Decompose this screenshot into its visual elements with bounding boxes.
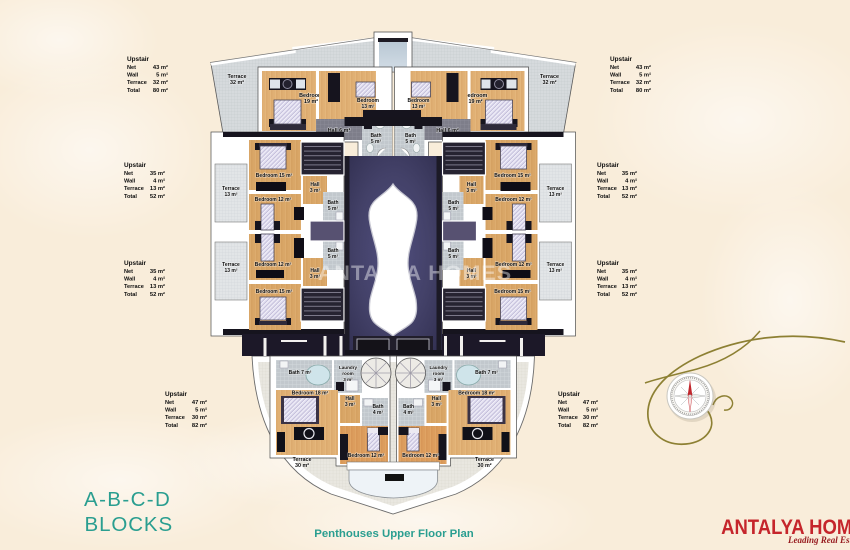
svg-text:Total: Total [597, 292, 610, 298]
svg-text:Bedroom 15 m²: Bedroom 15 m² [494, 173, 531, 179]
svg-text:13 m²: 13 m² [150, 283, 165, 290]
svg-text:3 m²: 3 m² [431, 402, 442, 408]
svg-text:30 m²: 30 m² [583, 414, 598, 421]
svg-text:5 m²: 5 m² [448, 254, 459, 260]
svg-text:13 m²: 13 m² [224, 268, 237, 274]
svg-text:Bedroom 15 m²: Bedroom 15 m² [256, 173, 293, 179]
svg-text:52 m²: 52 m² [622, 291, 637, 298]
svg-text:Total: Total [610, 88, 623, 94]
svg-text:Bedroom 15 m²: Bedroom 15 m² [256, 289, 293, 295]
svg-text:30 m²: 30 m² [192, 414, 207, 421]
svg-text:Wall: Wall [124, 277, 136, 283]
svg-text:82 m²: 82 m² [583, 422, 598, 429]
svg-text:Net: Net [124, 171, 133, 177]
svg-text:Leading Real Estate: Leading Real Estate [787, 535, 850, 545]
svg-text:Wall: Wall [124, 179, 136, 185]
svg-text:5 m²: 5 m² [328, 254, 339, 260]
svg-text:32 m²: 32 m² [153, 79, 168, 86]
svg-text:Terrace: Terrace [610, 80, 630, 86]
svg-text:52 m²: 52 m² [150, 193, 165, 200]
svg-text:5 m²: 5 m² [328, 206, 339, 212]
svg-text:30 m²: 30 m² [295, 463, 309, 469]
svg-text:Bath 7 m²: Bath 7 m² [289, 370, 312, 376]
svg-text:4 m²: 4 m² [153, 276, 165, 283]
svg-text:13 m²: 13 m² [622, 185, 637, 192]
svg-text:Terrace: Terrace [124, 284, 144, 290]
svg-text:Bedroom 18 m²: Bedroom 18 m² [458, 391, 495, 397]
svg-text:52 m²: 52 m² [622, 193, 637, 200]
svg-text:5 m²: 5 m² [586, 407, 598, 414]
svg-text:Total: Total [558, 423, 571, 429]
svg-text:3 m²: 3 m² [434, 377, 444, 382]
svg-text:47 m²: 47 m² [192, 399, 207, 406]
svg-text:4 m²: 4 m² [373, 410, 384, 416]
svg-text:Upstair: Upstair [127, 56, 150, 63]
svg-text:32 m²: 32 m² [542, 80, 556, 86]
svg-text:13 m²: 13 m² [224, 192, 237, 198]
svg-text:35 m²: 35 m² [622, 170, 637, 177]
svg-text:Terrace: Terrace [165, 415, 185, 421]
svg-text:5 m²: 5 m² [195, 407, 207, 414]
svg-text:13 m²: 13 m² [150, 185, 165, 192]
svg-text:5 m²: 5 m² [448, 206, 459, 212]
svg-text:3 m²: 3 m² [345, 402, 356, 408]
svg-text:32 m²: 32 m² [636, 79, 651, 86]
svg-text:Laundry: Laundry [429, 365, 448, 370]
svg-text:A-B-C-D: A-B-C-D [84, 488, 171, 511]
svg-text:4 m²: 4 m² [403, 410, 414, 416]
svg-text:80 m²: 80 m² [153, 87, 168, 94]
svg-text:Total: Total [124, 194, 137, 200]
svg-text:Net: Net [558, 400, 567, 406]
svg-text:80 m²: 80 m² [636, 87, 651, 94]
svg-text:35 m²: 35 m² [622, 268, 637, 275]
svg-text:Upstair: Upstair [124, 162, 147, 169]
svg-text:BLOCKS: BLOCKS [85, 513, 174, 536]
svg-text:4 m²: 4 m² [153, 178, 165, 185]
svg-text:13 m²: 13 m² [549, 192, 562, 198]
svg-text:Bedroom 12 m²: Bedroom 12 m² [348, 453, 385, 459]
svg-text:19 m²: 19 m² [304, 99, 318, 105]
svg-text:Penthouses Upper Floor Plan: Penthouses Upper Floor Plan [314, 528, 474, 540]
svg-text:13 m²: 13 m² [622, 283, 637, 290]
svg-text:5 m²: 5 m² [639, 72, 651, 79]
svg-text:Upstair: Upstair [124, 260, 147, 267]
svg-text:35 m²: 35 m² [150, 268, 165, 275]
svg-text:3 m²: 3 m² [343, 377, 353, 382]
svg-text:13 m²: 13 m² [361, 104, 374, 110]
svg-text:Net: Net [127, 65, 136, 71]
svg-text:Terrace: Terrace [558, 415, 578, 421]
svg-text:Wall: Wall [165, 408, 177, 414]
svg-text:19 m²: 19 m² [468, 99, 482, 105]
svg-text:Upstair: Upstair [597, 162, 620, 169]
svg-text:5 m²: 5 m² [371, 139, 382, 145]
svg-text:Net: Net [165, 400, 174, 406]
svg-text:Total: Total [127, 88, 140, 94]
svg-text:Terrace: Terrace [127, 80, 147, 86]
svg-text:Terrace: Terrace [597, 186, 617, 192]
svg-text:Laundry: Laundry [339, 365, 358, 370]
svg-text:Terrace: Terrace [124, 186, 144, 192]
svg-text:Wall: Wall [597, 277, 609, 283]
svg-text:Wall: Wall [127, 73, 139, 79]
svg-text:Bath 7 m²: Bath 7 m² [475, 370, 498, 376]
svg-text:13 m²: 13 m² [549, 268, 562, 274]
svg-text:Net: Net [124, 269, 133, 275]
svg-text:43 m²: 43 m² [636, 64, 651, 71]
svg-text:4 m²: 4 m² [625, 178, 637, 185]
svg-text:4 m²: 4 m² [625, 276, 637, 283]
svg-text:3 m²: 3 m² [466, 188, 477, 194]
svg-text:30 m²: 30 m² [477, 463, 491, 469]
svg-text:Net: Net [610, 65, 619, 71]
svg-text:Upstair: Upstair [165, 391, 188, 398]
svg-text:Bedroom 15 m²: Bedroom 15 m² [494, 289, 531, 295]
svg-text:32 m²: 32 m² [230, 80, 244, 86]
svg-text:5 m²: 5 m² [405, 139, 416, 145]
svg-text:Upstair: Upstair [610, 56, 633, 63]
svg-text:82 m²: 82 m² [192, 422, 207, 429]
svg-text:Terrace: Terrace [597, 284, 617, 290]
svg-text:Upstair: Upstair [597, 260, 620, 267]
svg-text:Upstair: Upstair [558, 391, 581, 398]
svg-text:3 m²: 3 m² [310, 188, 321, 194]
svg-text:Net: Net [597, 171, 606, 177]
svg-text:Wall: Wall [558, 408, 570, 414]
svg-text:Wall: Wall [610, 73, 622, 79]
svg-text:5 m²: 5 m² [156, 72, 168, 79]
svg-text:Bedroom 12 m²: Bedroom 12 m² [255, 262, 292, 268]
svg-text:35 m²: 35 m² [150, 170, 165, 177]
svg-text:Bedroom 12 m²: Bedroom 12 m² [402, 453, 439, 459]
svg-text:47 m²: 47 m² [583, 399, 598, 406]
svg-text:43 m²: 43 m² [153, 64, 168, 71]
svg-text:Net: Net [597, 269, 606, 275]
svg-text:Total: Total [124, 292, 137, 298]
svg-text:Wall: Wall [597, 179, 609, 185]
svg-text:Total: Total [165, 423, 178, 429]
svg-text:13 m²: 13 m² [412, 104, 425, 110]
svg-text:Bedroom 18 m²: Bedroom 18 m² [292, 391, 329, 397]
svg-text:52 m²: 52 m² [150, 291, 165, 298]
svg-text:Bedroom 12 m²: Bedroom 12 m² [255, 197, 292, 203]
svg-text:ANTALYA HOMES: ANTALYA HOMES [318, 261, 512, 285]
svg-text:room: room [433, 371, 444, 376]
svg-text:Total: Total [597, 194, 610, 200]
svg-text:Bedroom 12 m²: Bedroom 12 m² [495, 197, 532, 203]
svg-text:room: room [342, 371, 353, 376]
